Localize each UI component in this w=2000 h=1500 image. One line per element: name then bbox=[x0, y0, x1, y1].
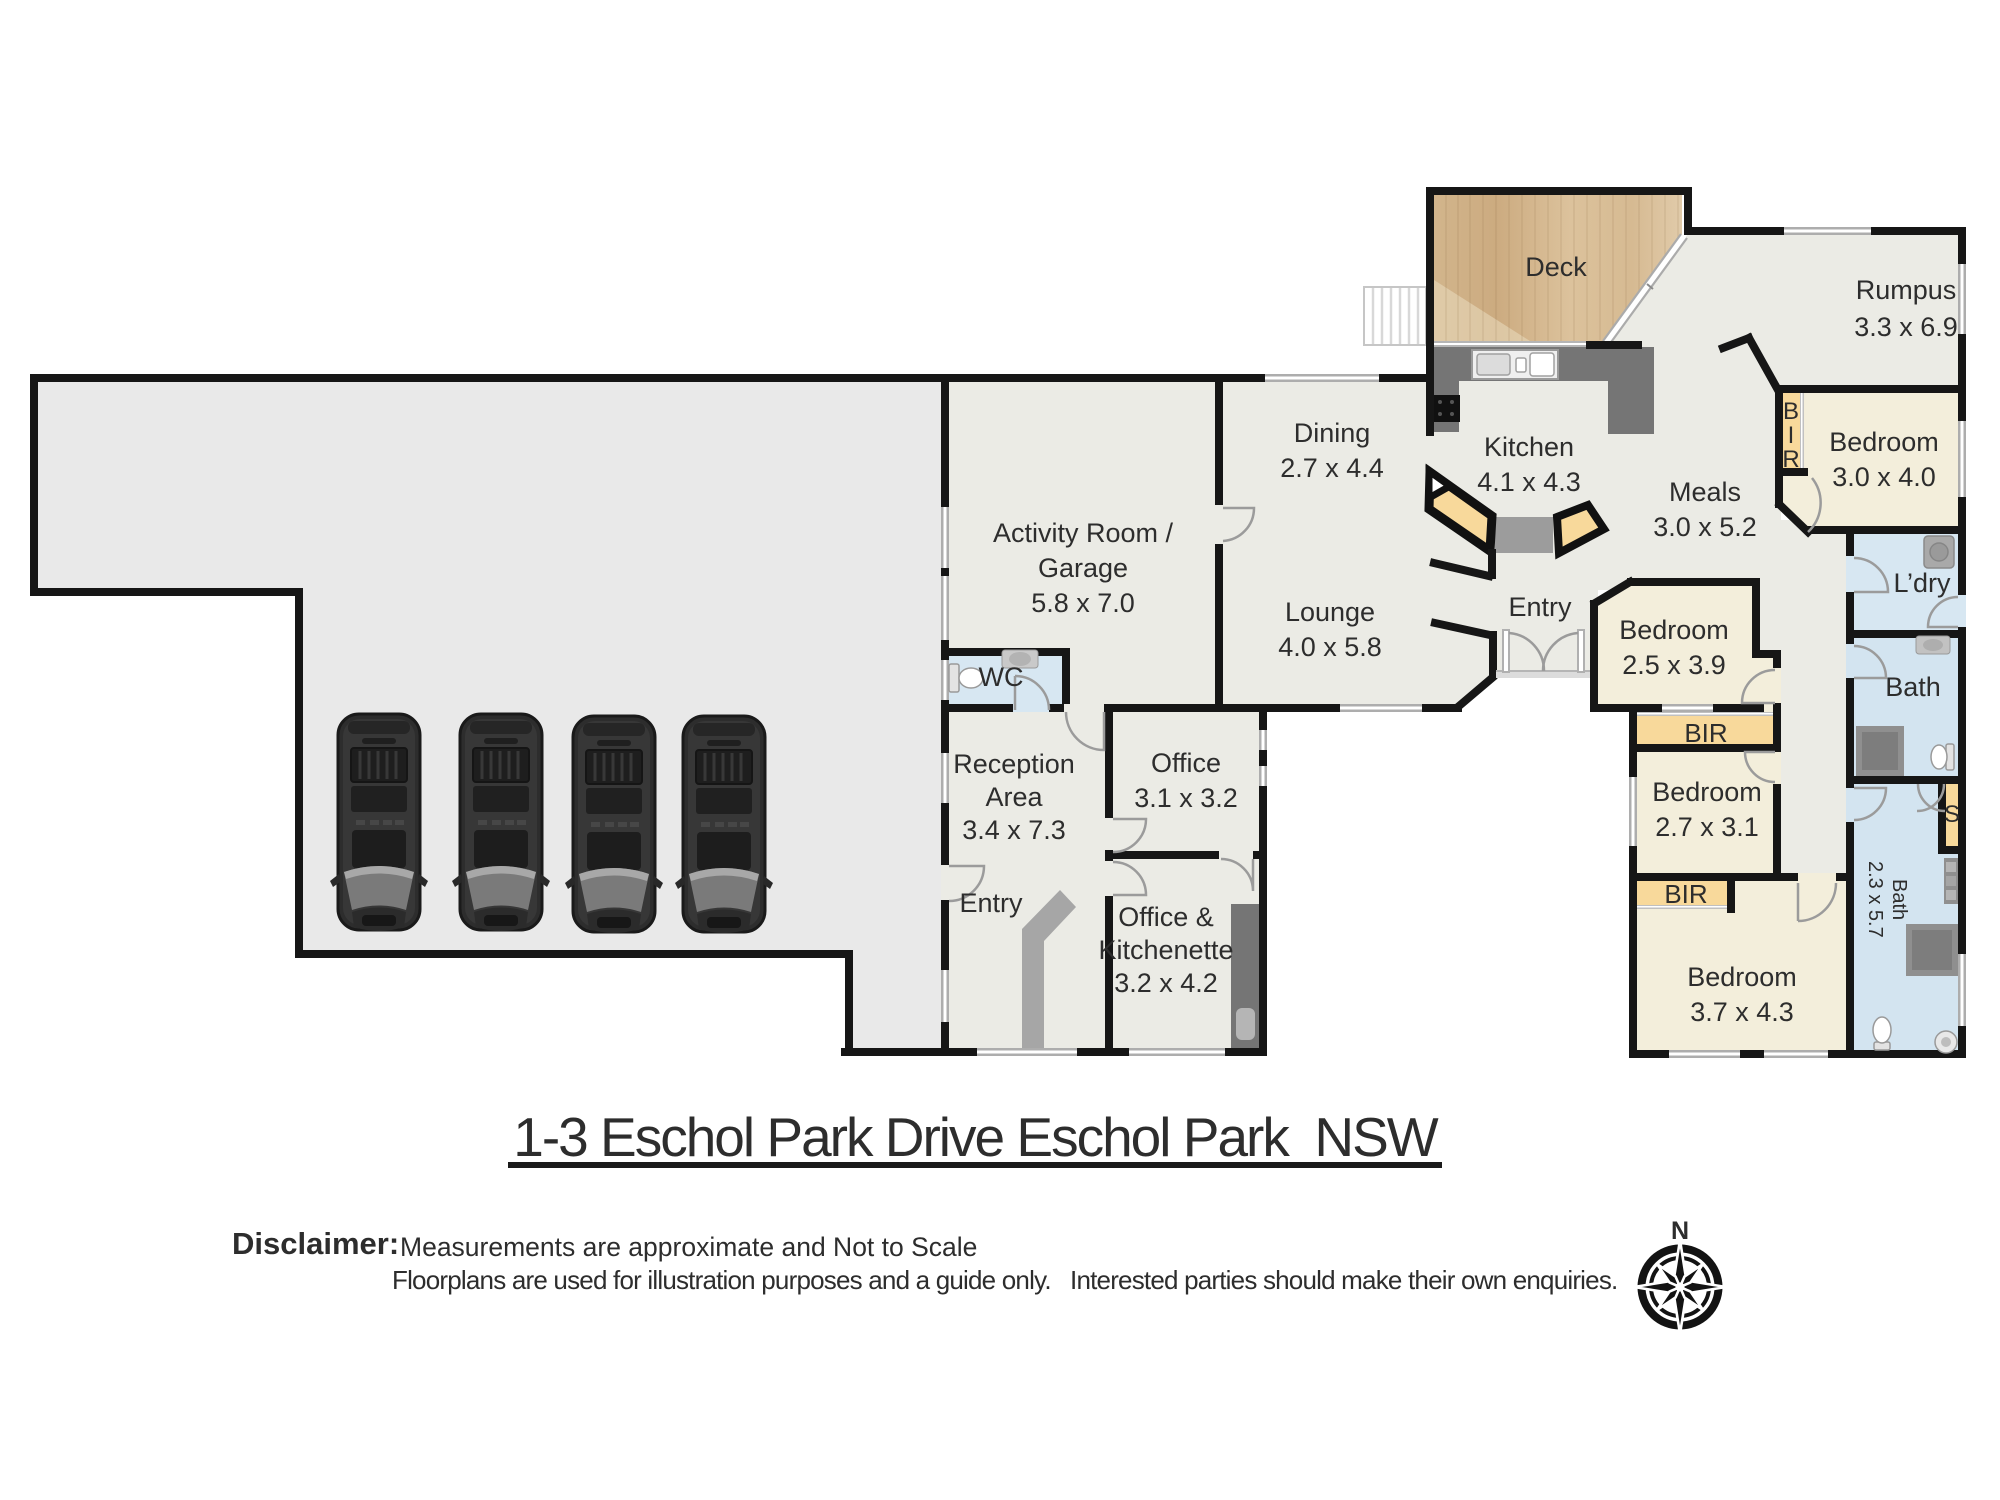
svg-text:S: S bbox=[1944, 801, 1960, 828]
svg-text:1-3 Eschol Park Drive Eschol P: 1-3 Eschol Park Drive Eschol Park NSW bbox=[513, 1106, 1439, 1168]
svg-text:Kitchen: Kitchen bbox=[1484, 432, 1574, 462]
svg-text:L’dry: L’dry bbox=[1893, 568, 1951, 598]
svg-text:Dining: Dining bbox=[1294, 418, 1371, 448]
svg-text:Lounge: Lounge bbox=[1285, 597, 1375, 627]
svg-text:2.7 x 4.4: 2.7 x 4.4 bbox=[1280, 453, 1384, 483]
svg-text:Meals: Meals bbox=[1669, 477, 1741, 507]
svg-text:Garage: Garage bbox=[1038, 553, 1128, 583]
svg-text:WC: WC bbox=[979, 662, 1024, 692]
svg-text:Area: Area bbox=[985, 782, 1043, 812]
svg-text:3.1 x 3.2: 3.1 x 3.2 bbox=[1134, 783, 1238, 813]
svg-text:Bedroom: Bedroom bbox=[1652, 777, 1762, 807]
svg-text:4.0 x 5.8: 4.0 x 5.8 bbox=[1278, 632, 1382, 662]
svg-text:Bath: Bath bbox=[1888, 879, 1910, 920]
svg-text:Entry: Entry bbox=[1508, 592, 1572, 622]
svg-text:Bedroom: Bedroom bbox=[1687, 962, 1797, 992]
svg-text:Bedroom: Bedroom bbox=[1829, 427, 1939, 457]
svg-text:4.1 x 4.3: 4.1 x 4.3 bbox=[1477, 467, 1581, 497]
svg-text:Deck: Deck bbox=[1525, 252, 1587, 282]
svg-text:Reception: Reception bbox=[953, 749, 1075, 779]
svg-text:BIR: BIR bbox=[1664, 879, 1707, 909]
svg-text:3.3 x 6.9: 3.3 x 6.9 bbox=[1854, 312, 1958, 342]
svg-text:Disclaimer:: Disclaimer: bbox=[232, 1226, 399, 1261]
svg-text:2.5 x 3.9: 2.5 x 3.9 bbox=[1622, 650, 1726, 680]
svg-text:2.7 x 3.1: 2.7 x 3.1 bbox=[1655, 812, 1759, 842]
svg-text:Activity Room /: Activity Room / bbox=[993, 518, 1174, 548]
svg-text:Measurements are approximate a: Measurements are approximate and Not to … bbox=[400, 1232, 977, 1262]
svg-text:Office &: Office & bbox=[1118, 902, 1214, 932]
svg-text:3.0 x 5.2: 3.0 x 5.2 bbox=[1653, 512, 1757, 542]
svg-text:R: R bbox=[1782, 446, 1799, 473]
svg-text:3.4 x 7.3: 3.4 x 7.3 bbox=[962, 815, 1066, 845]
svg-text:Entry: Entry bbox=[959, 888, 1023, 918]
svg-text:2.3 x 5.7: 2.3 x 5.7 bbox=[1864, 861, 1886, 938]
svg-text:3.7 x 4.3: 3.7 x 4.3 bbox=[1690, 997, 1794, 1027]
svg-text:5.8 x 7.0: 5.8 x 7.0 bbox=[1031, 588, 1135, 618]
svg-text:B: B bbox=[1783, 398, 1799, 425]
svg-text:I: I bbox=[1788, 422, 1795, 449]
svg-text:BIR: BIR bbox=[1684, 718, 1727, 748]
svg-text:Kitchenette: Kitchenette bbox=[1098, 935, 1233, 965]
svg-text:Office: Office bbox=[1151, 748, 1221, 778]
svg-text:Floorplans are used for illust: Floorplans are used for illustration pur… bbox=[392, 1265, 1617, 1295]
svg-text:Rumpus: Rumpus bbox=[1856, 275, 1957, 305]
svg-text:3.2 x 4.2: 3.2 x 4.2 bbox=[1114, 968, 1218, 998]
svg-text:3.0 x 4.0: 3.0 x 4.0 bbox=[1832, 462, 1936, 492]
svg-text:Bedroom: Bedroom bbox=[1619, 615, 1729, 645]
svg-text:Bath: Bath bbox=[1885, 672, 1941, 702]
